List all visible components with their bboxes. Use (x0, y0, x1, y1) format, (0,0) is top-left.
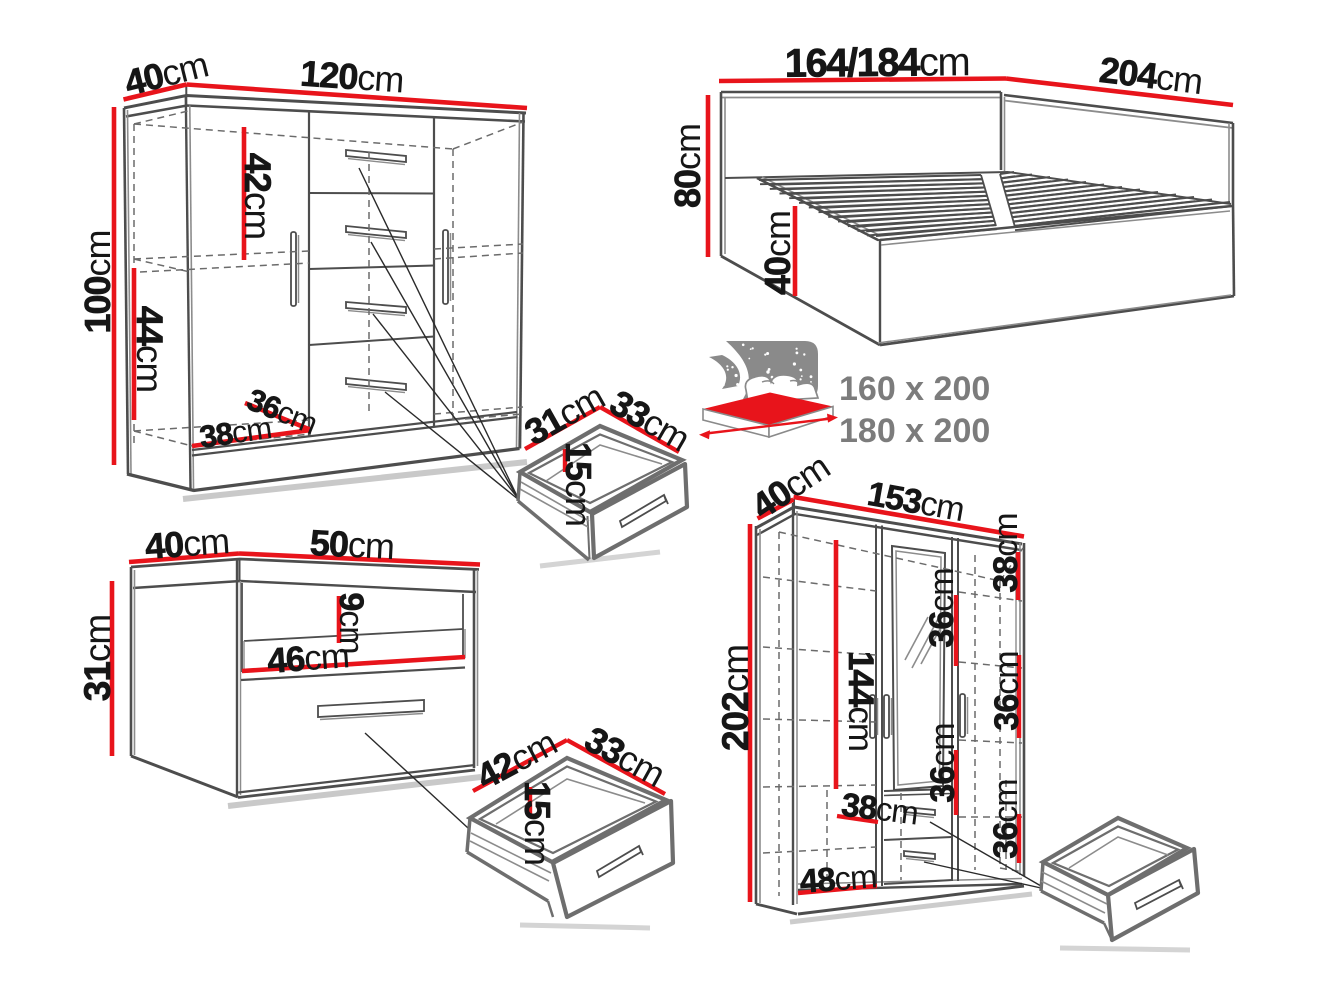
svg-text:15cm: 15cm (558, 442, 599, 526)
svg-text:202cm: 202cm (715, 645, 756, 751)
svg-text:38cm: 38cm (987, 513, 1025, 592)
svg-text:42cm: 42cm (237, 153, 278, 239)
svg-text:36cm: 36cm (987, 779, 1025, 858)
svg-text:36cm: 36cm (924, 723, 962, 802)
svg-text:36cm: 36cm (988, 651, 1026, 730)
svg-text:50cm: 50cm (309, 522, 395, 567)
svg-text:40cm: 40cm (757, 211, 798, 295)
svg-text:164/184cm: 164/184cm (785, 40, 970, 86)
svg-text:36cm: 36cm (923, 568, 961, 647)
svg-text:180 x 200: 180 x 200 (839, 412, 990, 450)
svg-text:15cm: 15cm (517, 781, 558, 865)
svg-text:31cm: 31cm (77, 615, 118, 701)
svg-text:80cm: 80cm (667, 124, 708, 208)
svg-text:40cm: 40cm (144, 520, 231, 567)
svg-text:100cm: 100cm (77, 230, 118, 333)
svg-text:120cm: 120cm (299, 52, 405, 100)
svg-text:44cm: 44cm (129, 306, 170, 392)
svg-text:144cm: 144cm (841, 651, 880, 751)
svg-text:46cm: 46cm (266, 636, 350, 681)
svg-text:160 x 200: 160 x 200 (839, 370, 990, 408)
svg-text:48cm: 48cm (799, 857, 878, 899)
